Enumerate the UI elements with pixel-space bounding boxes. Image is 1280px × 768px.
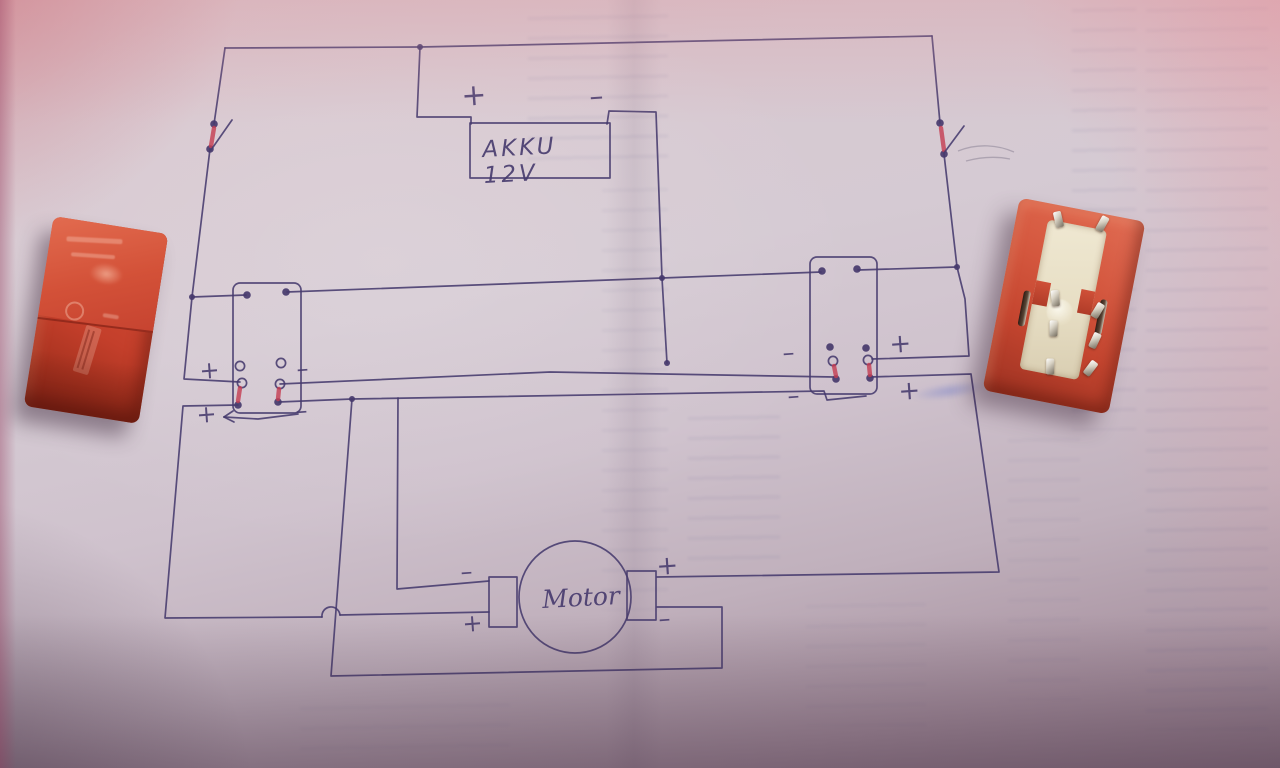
photo-scene: +–+–+––+–+–++– AKKU 12V Motor	[0, 0, 1280, 768]
photo-tint	[0, 0, 1280, 768]
photo-edge	[0, 0, 16, 768]
